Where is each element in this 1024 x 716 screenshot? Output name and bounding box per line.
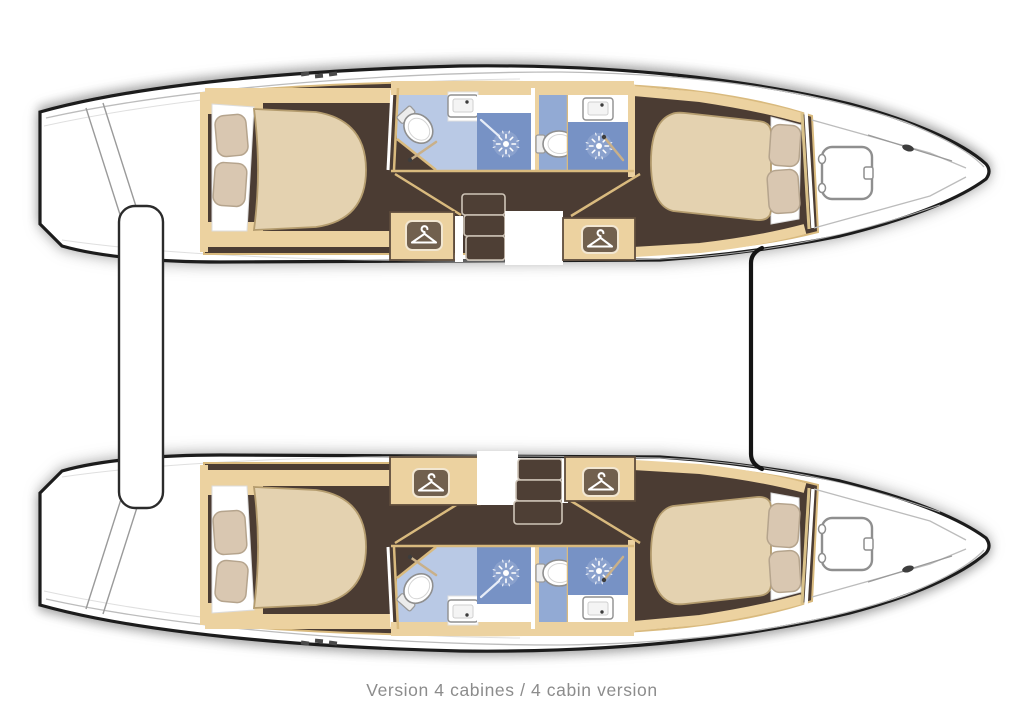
companionway-entry (477, 451, 518, 505)
companionway-steps (464, 215, 505, 236)
floor-plan-canvas (0, 0, 1024, 716)
caption: Version 4 cabines / 4 cabin version (0, 680, 1024, 701)
companionway-steps (514, 501, 562, 524)
floor-plan-page: Version 4 cabines / 4 cabin version (0, 0, 1024, 716)
companionway-entry (505, 211, 563, 265)
companionway-steps (466, 236, 505, 260)
companionway-steps (462, 194, 505, 215)
aft-crossbeam (119, 206, 163, 508)
companionway-steps (518, 459, 562, 480)
companionway-steps (516, 480, 562, 501)
